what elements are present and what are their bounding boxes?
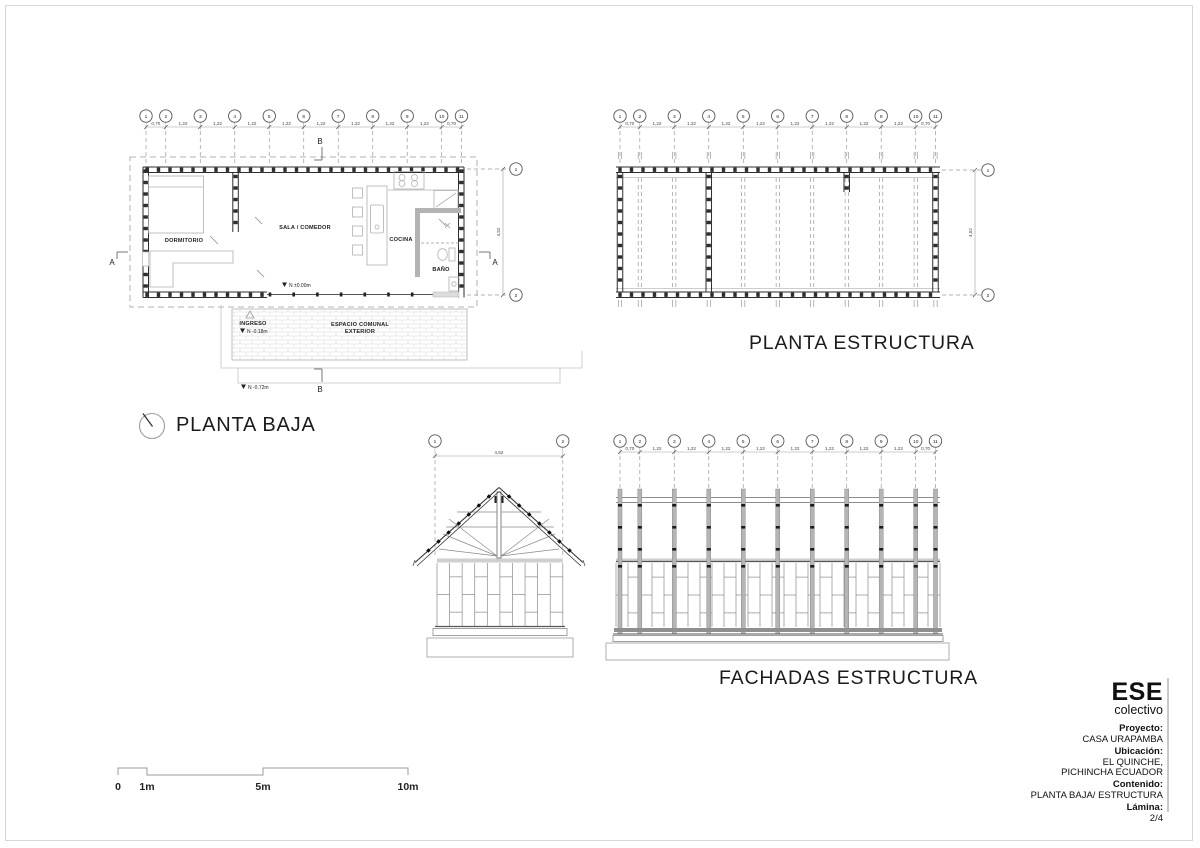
dimension-text: 1,22 <box>653 121 662 126</box>
scale-label: 10m <box>397 781 418 793</box>
gable-facade: 124,52 <box>413 435 585 657</box>
titleblock-field-value: CASA URAPAMBA <box>923 735 1163 746</box>
dimension-text: 1,22 <box>791 121 800 126</box>
grid-bubble-label: 1 <box>619 114 622 120</box>
grid-bubble-label: 11 <box>933 114 938 120</box>
grid-bubble-label: 6 <box>776 439 779 445</box>
grid-bubble-label: 4 <box>707 114 710 120</box>
grid-bubble-label: 9 <box>880 439 883 445</box>
grid-bubble-label: 2 <box>561 439 564 445</box>
grid-bubble-label: 5 <box>268 114 271 120</box>
grid-bubble-label: 7 <box>337 114 340 120</box>
section-marker-a-right: A <box>492 258 498 267</box>
dimension-text: 1,22 <box>687 121 696 126</box>
grid-bubble-label: 2 <box>164 114 167 120</box>
grid-bubble-label: 9 <box>406 114 409 120</box>
grid-bubble-label: 3 <box>673 114 676 120</box>
dimension-text: 0,70 <box>447 121 456 126</box>
level-marker-ingreso: N -0.18m <box>247 329 268 335</box>
dimension-text: 1,22 <box>756 121 765 126</box>
dimension-text: 1,22 <box>859 446 868 451</box>
dimension-text: 1,22 <box>420 121 429 126</box>
structure-plan: 12345678910110,701,221,221,221,221,221,2… <box>614 110 994 307</box>
dimension-text: 1,22 <box>385 121 394 126</box>
title-planta-estructura: PLANTA ESTRUCTURA <box>749 332 975 355</box>
dimension-text: 1,22 <box>248 121 257 126</box>
grid-bubble-label: 9 <box>880 114 883 120</box>
room-label-ingreso: INGRESO <box>239 321 267 327</box>
grid-bubble-label: 8 <box>845 114 848 120</box>
room-label-dormitorio: DORMITORIO <box>165 238 204 244</box>
room-label-bano: BAÑO <box>432 266 450 273</box>
grid-bubble-label: 10 <box>913 114 919 120</box>
scale-label: 5m <box>255 781 270 793</box>
grid-bubble-label: 5 <box>742 439 745 445</box>
grid-bubble-label: 6 <box>776 114 779 120</box>
grid-bubble-label: 2 <box>515 293 518 299</box>
grid-bubble-label: 6 <box>302 114 305 120</box>
grid-bubble-label: 11 <box>459 114 464 120</box>
titleblock-field-label: Lámina: <box>923 803 1163 814</box>
section-marker-b-top: B <box>317 137 322 146</box>
grid-bubble-label: 7 <box>811 114 814 120</box>
dimension-text: 1,22 <box>722 121 731 126</box>
floor-plan: 12345678910110,701,221,221,221,221,221,2… <box>117 110 582 389</box>
north-arrow <box>140 414 165 439</box>
long-facade: 12345678910110,701,221,221,221,221,221,2… <box>606 435 949 660</box>
grid-bubble-label: 7 <box>811 439 814 445</box>
grid-bubble-label: 1 <box>434 439 437 445</box>
grid-bubble-label: 2 <box>987 293 990 299</box>
dimension-text: 1,22 <box>825 121 834 126</box>
dimension-text: 1,22 <box>825 446 834 451</box>
grid-bubble-label: 1 <box>619 439 622 445</box>
dimension-text: 1,22 <box>894 121 903 126</box>
grid-bubble-label: 5 <box>742 114 745 120</box>
grid-bubble-label: 10 <box>439 114 445 120</box>
section-marker-a-left: A <box>109 258 115 267</box>
dimension-text: 1,22 <box>317 121 326 126</box>
dimension-text: 1,22 <box>722 446 731 451</box>
dimension-text: 1,22 <box>179 121 188 126</box>
dimension-text: 1,22 <box>894 446 903 451</box>
brand-subtitle: colectivo <box>923 703 1163 717</box>
dimension-text: 1,22 <box>791 446 800 451</box>
titleblock-field-value: 2/4 <box>923 814 1163 825</box>
grid-bubble-label: 1 <box>987 168 990 174</box>
dimension-text: 0,70 <box>151 121 160 126</box>
grid-bubble-label: 1 <box>515 167 518 173</box>
dimension-text: 0,70 <box>625 446 634 451</box>
dimension-text: 1,22 <box>351 121 360 126</box>
grid-bubble-label: 8 <box>371 114 374 120</box>
scale-label: 0 <box>115 781 121 793</box>
grid-bubble-label: 3 <box>199 114 202 120</box>
grid-bubble-label: 2 <box>638 114 641 120</box>
dimension-text: 4,52 <box>968 228 973 237</box>
dimension-text: 0,70 <box>921 446 930 451</box>
dimension-text: 1,22 <box>859 121 868 126</box>
titleblock-field-value: PICHINCHA ECUADOR <box>923 768 1163 779</box>
level-marker-interior: N ±0.00m <box>289 283 311 289</box>
dimension-text: 1,22 <box>282 121 291 126</box>
dimension-text: 1,22 <box>653 446 662 451</box>
grid-bubble-label: 4 <box>707 439 710 445</box>
brand-name: ESE <box>923 682 1163 703</box>
dimension-text: 1,22 <box>213 121 222 126</box>
level-marker-exterior: N -0.72m <box>248 385 269 391</box>
scale-label: 1m <box>139 781 154 793</box>
section-marker-b-bottom: B <box>317 385 322 394</box>
grid-bubble-label: 3 <box>673 439 676 445</box>
titleblock-field-value: PLANTA BAJA/ ESTRUCTURA <box>923 791 1163 802</box>
grid-bubble-label: 1 <box>145 114 148 120</box>
room-label-exterior: EXTERIOR <box>345 329 375 335</box>
room-label-sala: SALA / COMEDOR <box>279 225 331 231</box>
scale-bar: 01m5m10m <box>115 768 418 793</box>
title-block: ESE colectivo Proyecto:CASA URAPAMBAUbic… <box>923 682 1163 824</box>
title-planta-baja: PLANTA BAJA <box>176 414 316 437</box>
room-label-espacio-comunal: ESPACIO COMUNAL <box>331 322 389 328</box>
grid-bubble-label: 8 <box>845 439 848 445</box>
grid-bubble-label: 2 <box>638 439 641 445</box>
dimension-text: 4,52 <box>494 450 503 455</box>
dimension-text: 4,52 <box>496 227 501 236</box>
dimension-text: 1,22 <box>756 446 765 451</box>
dimension-text: 0,70 <box>921 121 930 126</box>
dimension-text: 1,22 <box>687 446 696 451</box>
room-label-cocina: COCINA <box>389 237 412 243</box>
title-block-fields: Proyecto:CASA URAPAMBAUbicación:EL QUINC… <box>923 724 1163 824</box>
grid-bubble-label: 11 <box>933 439 938 445</box>
title-block-rule <box>1167 678 1169 812</box>
grid-bubble-label: 10 <box>913 439 919 445</box>
grid-bubble-label: 4 <box>233 114 236 120</box>
dimension-text: 0,70 <box>625 121 634 126</box>
